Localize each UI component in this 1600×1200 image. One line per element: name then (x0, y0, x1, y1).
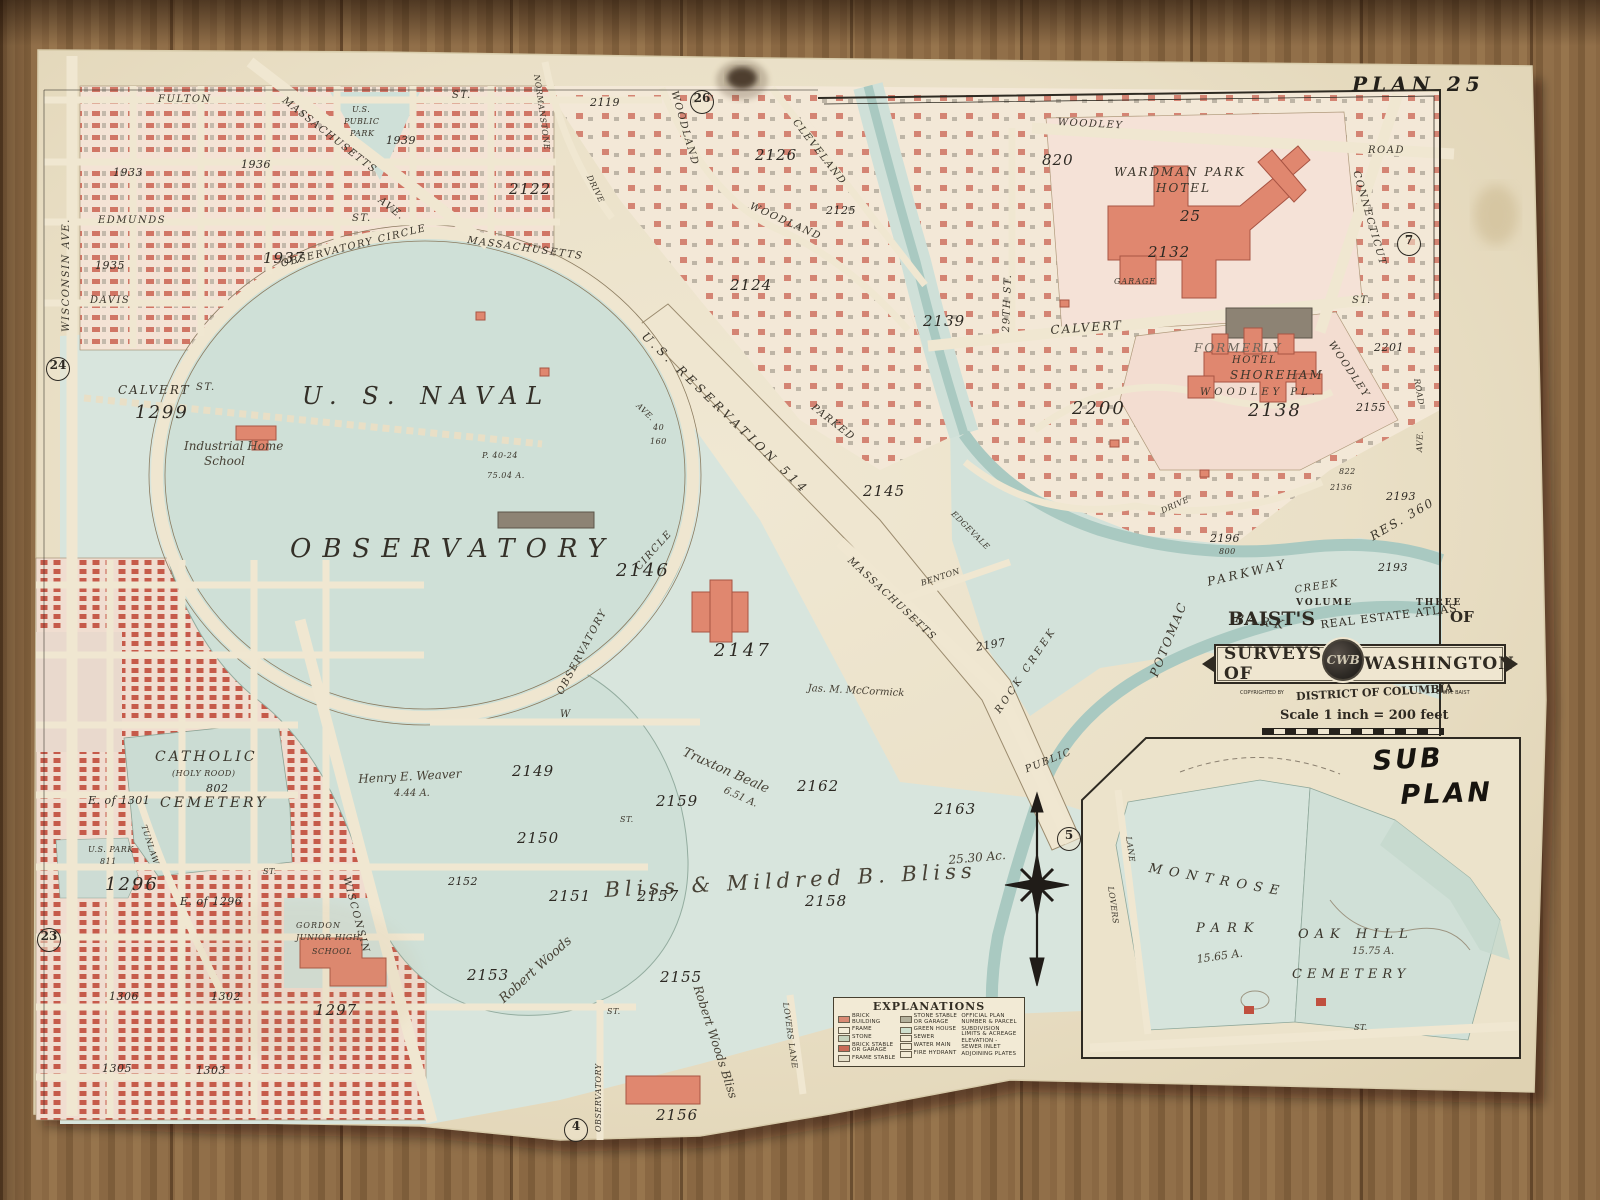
legend-label: SEWER (914, 1035, 935, 1041)
legend-title: EXPLANATIONS (838, 1000, 1020, 1013)
subplan-park: PARK (1196, 922, 1260, 935)
legend-swatch (838, 1027, 850, 1034)
square-2136: 2136 (1330, 484, 1352, 492)
title-volume: VOLUME (1296, 598, 1353, 608)
legend-label: FRAME (852, 1027, 872, 1033)
street-label-davis: DAVIS (90, 296, 130, 306)
water-main-symbol (900, 1043, 912, 1050)
title-block: VOLUME THREE BAIST'S REAL ESTATE ATLAS O… (1192, 592, 1510, 744)
legend-column-1: BRICK BUILDING FRAME STONE BRICK STABLE … (838, 1014, 897, 1062)
square-2138: 2138 (1248, 402, 1302, 420)
square-1297: 1297 (315, 1003, 357, 1018)
label-industrial-home-2: School (204, 455, 245, 467)
square-1936: 1936 (241, 159, 271, 170)
street-label-fulton: FULTON (158, 95, 212, 105)
square-2124: 2124 (730, 278, 772, 293)
legend-label: SUBDIVISION LIMITS & ACREAGE (961, 1027, 1020, 1039)
street-label-calvert-w-st: ST. (196, 383, 216, 393)
legend-column-3: OFFICIAL PLAN NUMBER & PARCEL SUBDIVISIO… (961, 1014, 1020, 1062)
adjoining-plate-26: 26 (690, 90, 714, 114)
label-40: 40 (653, 424, 664, 432)
subplan-oak-hill: OAK HILL (1298, 928, 1414, 941)
legend-label: FIRE HYDRANT (914, 1051, 957, 1057)
label-160: 160 (650, 438, 667, 446)
label-wardman-hotel: HOTEL (1156, 182, 1211, 194)
publisher-monogram-seal: CWB (1322, 639, 1364, 681)
label-formerly: FORMERLY (1194, 342, 1282, 354)
legend-label: STONE STABLE OR GARAGE (914, 1014, 959, 1026)
label-holy-rood: (HOLY ROOD) (172, 770, 235, 778)
legend-label: GREEN HOUSE (914, 1027, 957, 1033)
square-1935: 1935 (95, 260, 125, 271)
square-2156: 2156 (656, 1108, 698, 1123)
square-1296: 1296 (105, 876, 159, 894)
square-2150: 2150 (517, 831, 559, 846)
title-of: OF (1450, 608, 1474, 626)
label-us-public-park-1: U.S. (352, 106, 370, 114)
adjoining-plate-4: 4 (564, 1118, 588, 1142)
square-2145: 2145 (863, 484, 905, 499)
observatory-main-building (498, 512, 594, 528)
square-2132: 2132 (1148, 245, 1190, 260)
handwriting-sub: SUB (1372, 744, 1444, 775)
legend-label: BRICK BUILDING (852, 1014, 897, 1026)
legend-label: STONE (852, 1035, 872, 1041)
street-label-calvert-w: CALVERT (118, 384, 191, 396)
legend-swatch (900, 1027, 912, 1034)
observatory-parcel: P. 40-24 (482, 452, 518, 460)
square-e-of-1296: E. of 1296 (180, 896, 242, 907)
square-2163: 2163 (934, 802, 976, 817)
observatory-acreage: 75.04 A. (487, 472, 525, 480)
street-label-observatory-st: OBSERVATORY (595, 1063, 603, 1132)
square-2159: 2159 (656, 794, 698, 809)
square-2155-east: 2155 (1356, 402, 1386, 413)
adjoining-plate-5: 5 (1057, 827, 1081, 851)
square-1302: 1302 (211, 991, 241, 1002)
square-1305: 1305 (102, 1063, 132, 1074)
square-1303: 1303 (196, 1065, 226, 1076)
adjoining-plate-24: 24 (46, 357, 70, 381)
street-label-ave-e: AVE. (1416, 430, 1425, 452)
square-2158: 2158 (805, 894, 847, 909)
street-label-st-2: ST. (620, 816, 634, 824)
title-author: C. WM. BAIST (1436, 690, 1470, 696)
explanations-legend: EXPLANATIONS BRICK BUILDING FRAME STONE … (833, 997, 1025, 1067)
title-washington: WASHINGTON (1364, 654, 1515, 674)
shoreham-annex-building (1226, 308, 1312, 338)
street-label-fulton-st: ST. (452, 91, 472, 101)
square-2122: 2122 (509, 182, 551, 197)
atlas-photo: PLAN 25 26 7 24 23 4 5 FULTON ST. MASSAC… (0, 0, 1600, 1200)
square-2153: 2153 (467, 968, 509, 983)
legend-column-2: STONE STABLE OR GARAGE GREEN HOUSE SEWER… (900, 1014, 959, 1062)
square-1937: 1937 (263, 251, 305, 266)
label-us-park: U.S. PARK (88, 846, 134, 854)
fire-hydrant-symbol (900, 1051, 912, 1058)
square-2193-n: 2193 (1386, 491, 1416, 502)
street-label-edmunds: EDMUNDS (98, 216, 166, 226)
label-cemetery: CEMETERY (160, 796, 268, 810)
street-label-edmunds-st: ST. (352, 214, 372, 224)
us-park-square-811: 811 (100, 858, 117, 866)
legend-label: OFFICIAL PLAN NUMBER & PARCEL (961, 1014, 1020, 1026)
square-822: 822 (1339, 468, 1356, 476)
legend-swatch (838, 1016, 850, 1023)
legend-label: WATER MAIN (914, 1043, 951, 1049)
label-wardman-park: WARDMAN PARK (1114, 166, 1246, 178)
title-surveys-of: SURVEYS OF (1224, 644, 1322, 684)
label-shoreham: SHOREHAM (1230, 369, 1324, 381)
square-1306: 1306 (109, 991, 139, 1002)
street-label-w: W (560, 710, 572, 720)
label-observatory: OBSERVATORY (290, 536, 616, 562)
label-wardman-garage: GARAGE (1114, 278, 1156, 286)
square-2119: 2119 (590, 97, 620, 108)
adjoining-plate-7: 7 (1397, 232, 1421, 256)
sewer-symbol (900, 1035, 912, 1042)
label-woodley-pl: WOODLEY PL. (1200, 388, 1319, 398)
square-820: 820 (1042, 153, 1074, 168)
legend-swatch (838, 1035, 850, 1042)
legend-label: BRICK STABLE OR GARAGE (852, 1043, 897, 1055)
plate-number: PLAN 25 (1352, 74, 1485, 94)
label-hotel: HOTEL (1232, 356, 1277, 366)
square-2147: 2147 (714, 642, 772, 660)
square-2196: 2196 (1210, 533, 1240, 544)
title-copyrighted: COPYRIGHTED BY (1240, 690, 1284, 696)
square-2152: 2152 (448, 876, 478, 887)
street-label-29th-st: 29TH ST. (1002, 274, 1014, 333)
legend-swatch (838, 1045, 850, 1052)
adjoining-plate-23: 23 (37, 928, 61, 952)
scale-bar (1262, 728, 1444, 735)
square-2155: 2155 (660, 970, 702, 985)
legend-swatch (838, 1055, 850, 1062)
title-baists: BAIST'S (1228, 608, 1315, 630)
square-2149: 2149 (512, 764, 554, 779)
cemetery-square-802: 802 (206, 783, 229, 794)
subplan-oak-acreage: 15.75 A. (1352, 947, 1394, 957)
label-school: SCHOOL (312, 948, 352, 956)
square-1299: 1299 (135, 404, 189, 422)
square-e-of-1301: E. of 1301 (88, 795, 150, 806)
handwriting-weaver-acreage: 4.44 A. (394, 789, 430, 799)
square-2196-parcel-800: 800 (1219, 548, 1236, 556)
title-banner: SURVEYS OF CWB WASHINGTON (1214, 644, 1506, 684)
label-us-public-park-3: PARK (350, 130, 374, 138)
label-us-naval: U. S. NAVAL (302, 384, 551, 408)
street-label-road-top: ROAD (1368, 146, 1405, 156)
street-label-wisconsin-ave: WISCONSIN AVE. (62, 218, 72, 332)
square-1933: 1933 (113, 167, 143, 178)
legend-label: ELEVATION - SEWER INLET (961, 1039, 1020, 1051)
title-scale: Scale 1 inch = 200 feet (1280, 708, 1449, 723)
label-catholic: CATHOLIC (155, 750, 258, 764)
square-2201: 2201 (1374, 342, 1404, 353)
square-2151: 2151 (549, 889, 591, 904)
label-junior-high: JUNIOR HIGH (296, 934, 360, 942)
square-2126: 2126 (755, 148, 797, 163)
legend-swatch (900, 1016, 912, 1023)
street-label-st-1: ST. (263, 868, 277, 876)
square-2162: 2162 (797, 779, 839, 794)
label-industrial-home-1: Industrial Home (184, 440, 283, 452)
handwriting-plan: PLAN (1400, 779, 1493, 809)
square-2146: 2146 (616, 562, 670, 580)
square-2200: 2200 (1072, 400, 1126, 418)
subplan-st: ST. (1354, 1024, 1368, 1032)
legend-label: FRAME STABLE (852, 1056, 895, 1062)
square-2139: 2139 (923, 314, 965, 329)
square-1939: 1939 (386, 135, 416, 146)
legend-label: ADJOINING PLATES (961, 1052, 1016, 1058)
square-2193-s: 2193 (1378, 562, 1408, 573)
subplan-cemetery: CEMETERY (1292, 968, 1410, 981)
street-label-calvert-e-st: ST. (1352, 296, 1372, 306)
title-district: DISTRICT OF COLUMBIA (1296, 682, 1454, 703)
wardman-square-25: 25 (1180, 209, 1201, 224)
street-label-st-3: ST. (607, 1008, 621, 1016)
square-2125: 2125 (826, 205, 856, 216)
label-gordon: GORDON (296, 922, 341, 930)
label-us-public-park-2: PUBLIC (344, 118, 379, 126)
large-south-building (626, 1076, 700, 1104)
